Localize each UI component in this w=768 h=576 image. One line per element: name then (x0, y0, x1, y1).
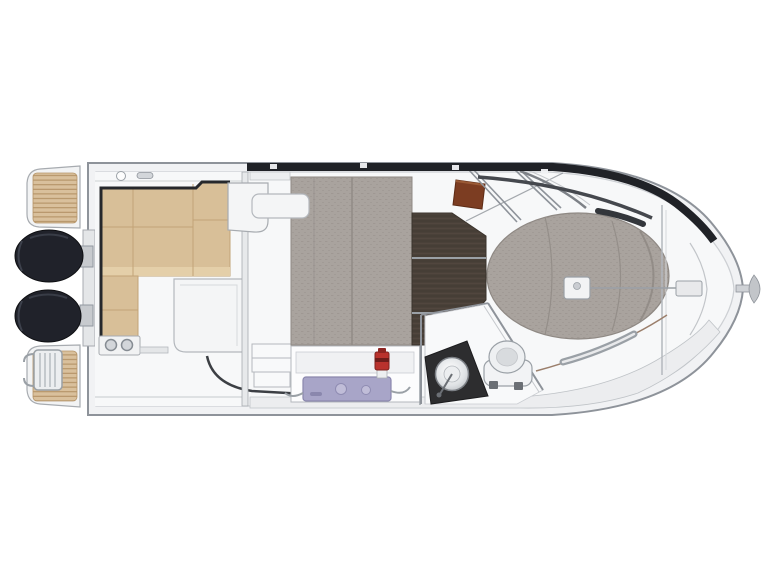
windlass (564, 277, 590, 299)
stove-handle (310, 392, 322, 396)
fuel-filler-fitting (117, 172, 126, 181)
bow-sunpad (487, 213, 669, 339)
outboard-engine-port (15, 230, 83, 282)
helm-seat (453, 180, 485, 209)
deck-plan-svg (0, 0, 768, 576)
galley-faucet (375, 348, 389, 378)
cockpit-step-bar (140, 347, 168, 353)
burner-1 (336, 384, 347, 395)
anchor-roller (676, 281, 702, 296)
roof-corner-port (250, 172, 290, 180)
bench-transom-section (102, 276, 138, 342)
galley (285, 346, 420, 405)
burner-2 (362, 386, 371, 395)
swim-platform-starboard (24, 345, 80, 407)
cockpit-table-module (174, 279, 243, 352)
bench-front-edge (102, 267, 230, 276)
stern (15, 166, 93, 407)
engine-bracket-starboard (80, 305, 93, 326)
galley-shelf (296, 352, 414, 373)
wet-bar-cupholders (99, 336, 140, 355)
swim-platform-port (27, 166, 80, 228)
outboard-engine-starboard (15, 290, 81, 342)
galley-stove (285, 377, 410, 401)
cleat-fitting (137, 173, 153, 179)
boat-deck-plan-image (0, 0, 768, 576)
roof-beam (252, 194, 309, 218)
companionway-steps (252, 344, 295, 387)
